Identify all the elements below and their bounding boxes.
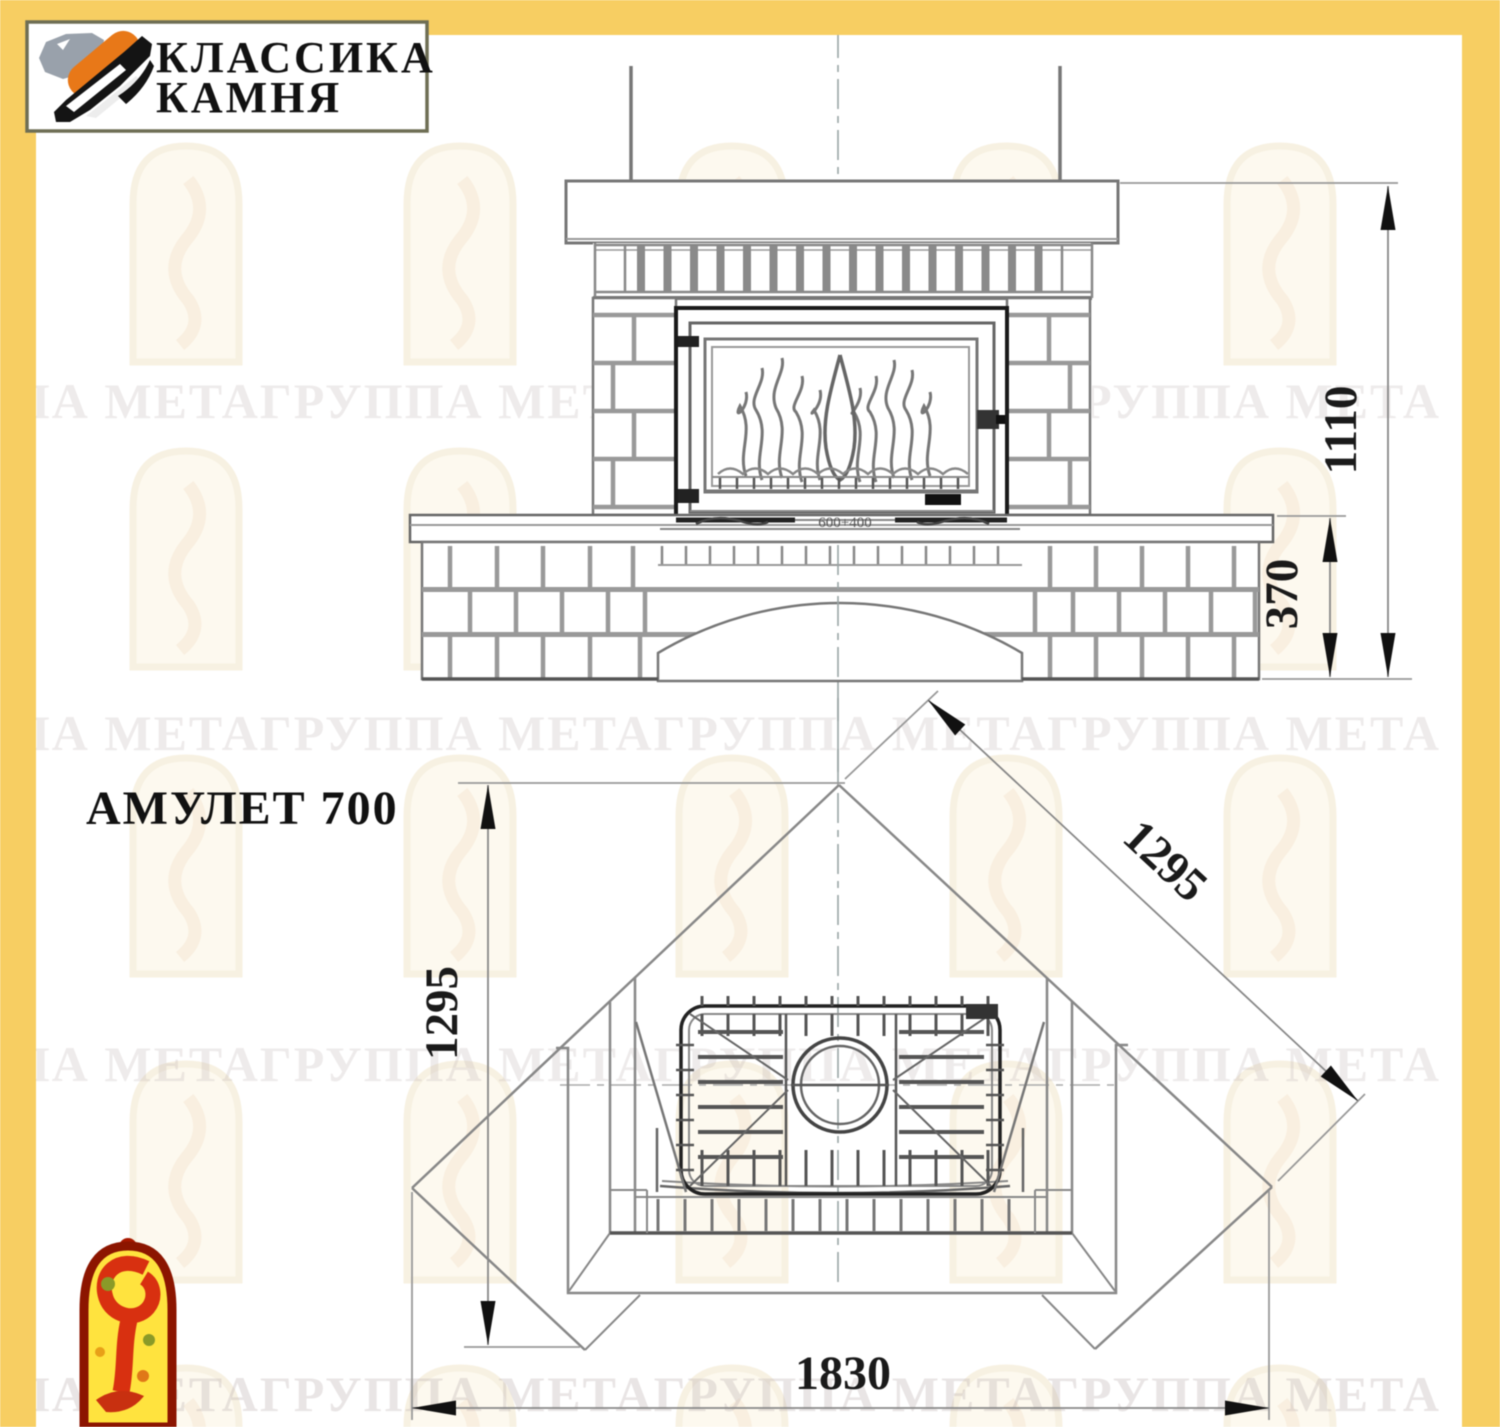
svg-text:1110: 1110	[1315, 386, 1367, 475]
svg-text:ППА МЕТАГРУППА МЕТАГРУППА МЕТА: ППА МЕТАГРУППА МЕТАГРУППА МЕТАГРУППА МЕТ…	[0, 705, 1441, 761]
svg-text:370: 370	[1256, 559, 1308, 630]
svg-text:КАМНЯ: КАМНЯ	[156, 73, 342, 122]
svg-text:ППА МЕТАГРУППА МЕТАГРУППА МЕТА: ППА МЕТАГРУППА МЕТАГРУППА МЕТАГРУППА МЕТ…	[0, 1366, 1441, 1422]
svg-text:АМУЛЕТ 700: АМУЛЕТ 700	[86, 782, 399, 835]
svg-text:1295: 1295	[416, 966, 468, 1060]
svg-text:1830: 1830	[795, 1347, 891, 1400]
svg-text:600+400: 600+400	[818, 515, 871, 531]
